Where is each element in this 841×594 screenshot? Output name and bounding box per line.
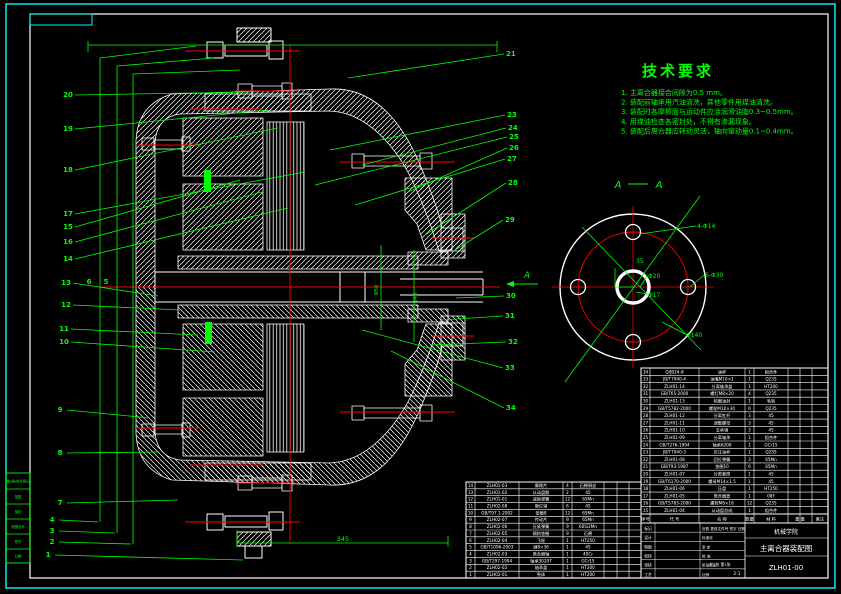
balloon-number: 10: [59, 338, 69, 346]
leader-line: [59, 542, 131, 544]
bom-cell: 压紧弹簧: [533, 523, 550, 530]
bom-cell: 22: [643, 457, 649, 462]
bom-cell: 螺母M14×1.5: [708, 478, 736, 485]
bom-cell: 分离轴承盖: [712, 383, 733, 390]
bom-cell: 6: [469, 538, 472, 543]
bom-cell: 5: [469, 545, 472, 550]
balloon-number: 24: [508, 124, 518, 132]
balloon-number: 26: [509, 144, 519, 152]
bom-cell: 1: [748, 442, 751, 447]
bom-cell: 减振弹簧: [533, 496, 550, 503]
title-block-label: 标准化: [702, 535, 713, 540]
bom-cell: 12: [565, 497, 571, 502]
bom-cell: 60Si2Mn: [579, 524, 597, 529]
bom-cell: 油杯: [718, 368, 727, 375]
bom-cell: ZLH01-06: [664, 486, 685, 491]
bom-cell: 轴承30207: [530, 557, 552, 564]
balloon-number: 33: [505, 364, 515, 372]
bom-header-cell: 材 料: [766, 516, 777, 523]
bom-cell: 18: [643, 486, 649, 491]
bom-cell: ZLH02-07: [487, 517, 508, 522]
bom-cell: 40Cr: [583, 552, 593, 557]
bom-cell: 26: [643, 428, 649, 433]
dimension-label: Φ140: [686, 332, 702, 339]
bom-cell: 4: [748, 391, 751, 396]
balloon-number: 17: [63, 210, 73, 218]
bom-cell: 从动盘总成: [712, 507, 733, 514]
balloon-number: 8: [58, 449, 63, 457]
bom-cell: 15: [643, 508, 649, 513]
bom-cell: 1: [566, 538, 569, 543]
bom-cell: 分离杠杆: [714, 412, 732, 419]
tech-requirement-line: 1. 主离合器接合间隙为0.5 mm。: [621, 88, 727, 97]
bom-cell: 23: [643, 450, 649, 455]
bom-cell: 飞轮: [537, 537, 546, 544]
bom-cell: 螺栓M10×30: [709, 405, 735, 412]
title-block-label: 校核: [644, 554, 652, 559]
bom-cell: GB/T6170-2000: [658, 479, 691, 484]
balloon-number: 28: [508, 179, 518, 187]
cad-viewport: 345 Φ50 Φ40 A A A: [0, 0, 841, 594]
bom-cell: 1: [566, 572, 569, 577]
bom-cell: 轴承盖: [535, 564, 548, 571]
bom-cell: 调整螺母: [714, 419, 731, 426]
bom-cell: ZLH02-08: [487, 504, 508, 509]
balloon-number: 7: [58, 499, 63, 507]
balloon-number: 15: [63, 223, 73, 231]
bom-cell: 45: [585, 490, 591, 495]
bom-cell: GB/T97.1-2002: [481, 510, 513, 515]
bom-cell: 1: [748, 486, 751, 491]
bom-cell: Q/JB24-8: [665, 369, 684, 374]
balloon-number: 20: [63, 91, 73, 99]
balloon-number: 19: [63, 125, 73, 133]
bom-cell: ZLH01-08: [664, 457, 685, 462]
title-block-label: 制图: [644, 544, 652, 549]
dimension-label: Φ20: [648, 273, 661, 280]
bom-cell: 1: [748, 450, 751, 455]
drawing-number: ZLH01-00: [769, 564, 803, 572]
leader-line: [408, 148, 507, 192]
technical-requirements: 技术要求 1. 主离合器接合间隙为0.5 mm。2. 装配前轴承用汽油清洗，其他…: [621, 62, 798, 135]
leader-line: [59, 520, 98, 522]
margin-table-cell: 签字: [15, 539, 22, 544]
bom-cell: 离合器轴: [533, 551, 550, 558]
bom-cell: 29: [643, 406, 649, 411]
bom-cell: 隔热垫圈: [533, 530, 550, 537]
bom-cell: 1: [748, 377, 751, 382]
bom-cell: 毡圈油封: [714, 397, 731, 404]
bom-cell: HT200: [764, 384, 778, 389]
dim-shaft-1: Φ50: [374, 285, 380, 295]
bom-cell: HT200: [581, 572, 595, 577]
bom-cell: 3: [748, 428, 751, 433]
bom-cell: ZLH01-11: [664, 420, 685, 425]
bom-cell: 12: [565, 510, 571, 515]
bom-cell: 1: [566, 552, 569, 557]
balloon-number: 3: [50, 527, 55, 535]
balloon-number: 2: [50, 538, 55, 546]
bom-cell: GB/T297-1994: [482, 558, 513, 563]
bom-cell: Q235: [765, 377, 777, 382]
margin-table-cell: 描图: [15, 494, 22, 499]
bom-cell: Q235: [765, 501, 777, 506]
bom-cell: GCr15: [581, 558, 595, 563]
bom-cell: 19: [643, 479, 649, 484]
bom-cell: 65Mn: [765, 457, 777, 462]
bom-cell: 11: [468, 504, 474, 509]
bom-cell: 20: [643, 471, 649, 476]
bom-cell: 08F: [767, 493, 775, 498]
balloon-number: 34: [506, 404, 516, 412]
balloon-number: 21: [506, 50, 516, 58]
bom-cell: 3: [748, 420, 751, 425]
bom-cell: 7: [469, 531, 472, 536]
bom-header-cell: 序号: [641, 516, 649, 523]
bom-cell: 6: [748, 464, 751, 469]
bom-cell: 组合件: [765, 368, 778, 375]
aa-label-right: A: [655, 180, 663, 191]
dimension-label: 4-Φ14: [697, 223, 716, 230]
bom-cell: 分离套筒: [714, 470, 731, 477]
bom-cell: 螺栓M8×16: [710, 500, 734, 507]
leader-line: [348, 54, 504, 78]
bom-cell: 1: [748, 471, 751, 476]
bom-cell: ZLH01-09: [664, 435, 685, 440]
title-block-label: 标记: [644, 526, 652, 531]
bom-cell: ZLH02-05: [487, 531, 508, 536]
bom-cell: 3: [469, 558, 472, 563]
bom-cell: 压盘: [718, 485, 726, 492]
bom-cell: GB/T1096-2003: [481, 545, 514, 550]
margin-table-cell: 描校: [15, 509, 22, 514]
title-block-label: 审 定: [702, 544, 711, 549]
balloon-number: 31: [505, 312, 515, 320]
bom-cell: 离合器盖: [714, 492, 731, 499]
bom-cell: 石棉: [584, 530, 592, 537]
bom-cell: 10: [468, 510, 474, 515]
aa-label-left: A: [614, 180, 622, 191]
bom-header-cell: 名 称: [717, 516, 727, 523]
bom-cell: 4: [566, 483, 569, 488]
balloon-number: 6: [87, 278, 92, 286]
bom-cell: 13: [468, 490, 474, 495]
bom-header-cell: 代 号: [670, 516, 680, 523]
bom-cell: 传动片: [535, 516, 548, 523]
title-block-label: 比例: [702, 572, 710, 577]
title-block-texts: 机械学院 主离合器装配图 ZLH01-00 2:1 共1张 第1张: [709, 528, 812, 577]
bom-cell: 45: [768, 413, 774, 418]
bom-cell: 2: [469, 565, 472, 570]
bom-cell: 分离轴承: [714, 434, 732, 441]
leader-line: [73, 305, 180, 310]
bom-cell: 从动盘毂: [533, 489, 551, 496]
bom-header-cell: 重 量: [795, 516, 805, 523]
bom-cell: GCr15: [764, 442, 778, 447]
sheet-count: 共1张 第1张: [709, 562, 730, 567]
dimension-label: 6-Φ30: [705, 272, 724, 279]
bom-cell: 螺钉M8×20: [710, 390, 734, 397]
leader-line: [330, 115, 505, 150]
bom-cell: 65Mn: [582, 510, 594, 515]
bom-cell: ZLH01-07: [664, 471, 685, 476]
bom-cell: HT250: [581, 538, 595, 543]
accessory-strip: [30, 14, 92, 25]
highlight-part-2: [205, 322, 212, 344]
balloon-number: 30: [506, 292, 516, 300]
bom-cell: 9: [566, 531, 569, 536]
bom-cell: 12: [468, 497, 474, 502]
title-block-label: 工艺: [644, 572, 652, 577]
bom-cell: 27: [643, 420, 649, 425]
bom-cell: 24: [643, 442, 649, 447]
title-block-label: 审核: [644, 563, 652, 568]
bom-cell: GB/T65-2000: [661, 391, 689, 396]
bom-cell: 组合件: [765, 434, 778, 441]
main-section-view: 345 Φ50 Φ40 A: [88, 28, 538, 558]
engineering-drawing: 345 Φ50 Φ40 A A A: [0, 0, 841, 594]
bom-cell: 1: [748, 508, 751, 513]
bom-cell: 65Mn: [582, 517, 594, 522]
bom-cell: 45: [585, 504, 591, 509]
leader-line: [59, 531, 115, 533]
tech-title: 技术要求: [642, 62, 714, 80]
bom-cell: 17: [643, 493, 649, 498]
dim-bottom-length: 345: [337, 535, 349, 543]
bom-cell: ZLH02-02: [487, 565, 508, 570]
balloon-number: 14: [63, 255, 73, 263]
bom-cell: 3: [748, 413, 751, 418]
bom-cell: JB/T7940-4: [662, 377, 686, 382]
margin-table: 借(通)用件登记描图描校底图总号签字日期: [6, 473, 30, 563]
balloon-number: 11: [59, 325, 69, 333]
dimension-label: Φ17: [648, 292, 661, 299]
balloon-number: 12: [61, 301, 71, 309]
bom-cell: 31: [643, 391, 649, 396]
bom-cell: 34: [643, 369, 649, 374]
balloon-number: 18: [63, 166, 73, 174]
drawing-title: 主离合器装配图: [760, 543, 813, 553]
bom-cell: ZLH02-01: [487, 572, 508, 577]
bom-cell: 65Mn: [765, 464, 777, 469]
balloon-number: 13: [61, 279, 71, 287]
bom-cell: ZLH01-05: [664, 493, 685, 498]
leader-line: [71, 329, 198, 335]
section-upper-half: [136, 83, 465, 287]
balloon-number: 9: [58, 406, 63, 414]
bom-cell: 1: [748, 435, 751, 440]
bom-cell: Q235: [765, 450, 777, 455]
bom-header-cell: 数量: [745, 516, 753, 523]
bom-cell: 6: [748, 406, 751, 411]
title-block-label: 设计: [644, 535, 652, 540]
bom-cell: 45: [768, 420, 774, 425]
bom-cell: 1: [748, 398, 751, 403]
tech-lines: 1. 主离合器接合间隙为0.5 mm。2. 装配前轴承用汽油清洗，其他零件用煤油…: [621, 88, 798, 135]
bom-cell: 45: [585, 545, 591, 550]
cover-band: [205, 94, 311, 111]
balloon-number: 27: [507, 155, 517, 163]
bom-cell: GB/T5782-2000: [658, 406, 691, 411]
bom-cell: 1: [566, 565, 569, 570]
tech-requirement-line: 2. 装配前轴承用汽油清洗，其他零件用煤油清洗。: [621, 98, 777, 107]
bom-cell: 21: [643, 464, 649, 469]
bom-cell: 石棉铜丝: [580, 482, 597, 489]
bom-cell: 回位弹簧: [714, 456, 731, 463]
unit-name: 机械学院: [774, 528, 798, 536]
bom-cell: 限位销: [535, 503, 548, 510]
bom-cell: 9: [469, 517, 472, 522]
balloon-number: 25: [509, 133, 519, 141]
bom-cell: 8: [469, 524, 472, 529]
bom-cell: 2: [566, 490, 569, 495]
bom-cell: 1: [748, 479, 751, 484]
bom-cell: Q235: [765, 406, 777, 411]
bom-cell: 1: [748, 384, 751, 389]
bom-cell: 33: [643, 377, 649, 382]
bom-cell: ZLH02-04: [487, 538, 508, 543]
tech-requirement-line: 5. 装配后离合器应转动灵活，轴向窜动量0.1~0.4mm。: [621, 126, 798, 135]
bom-cell: 28: [643, 413, 649, 418]
title-block-label: 批 准: [702, 554, 711, 559]
leader-line: [55, 555, 243, 560]
bom-cell: Q235: [765, 391, 777, 396]
tech-requirement-line: 3. 装配时各摩擦面与运动件应涂润滑油脂0.3~0.5mm。: [621, 107, 798, 116]
bom-cell: GB/T5783-2000: [658, 501, 691, 506]
bom-cell: 壳体: [537, 571, 546, 578]
pressure-plate-block: [183, 118, 263, 176]
hub-sleeve: [178, 256, 418, 269]
balloon-number: 1: [46, 551, 51, 559]
bom-cell: ZLH01-02: [487, 490, 508, 495]
bom-cell: ZLH01-10: [664, 428, 685, 433]
bom-cell: 组合件: [765, 507, 778, 514]
section-cut-arrow: A: [506, 271, 538, 287]
bom-cell: GB/T276-1994: [659, 442, 690, 447]
bom-header-cell: 备注: [816, 516, 825, 523]
bom-cell: ZLH01-14: [664, 384, 685, 389]
bom-cell: 1: [469, 572, 472, 577]
bom-cell: 9: [566, 517, 569, 522]
balloon-number: 5: [104, 278, 109, 286]
bom-cell: 4: [469, 552, 472, 557]
bom-cell: 45: [768, 428, 774, 433]
balloon-number: 16: [63, 238, 73, 246]
bom-cell: 25: [643, 435, 649, 440]
bom-cell: 垫圈8: [535, 509, 546, 516]
bom-cell: GB/T93-1987: [661, 464, 689, 469]
margin-table-cell: 底图总号: [11, 524, 25, 529]
margin-table-cell: 日期: [15, 554, 22, 559]
bom-cell: 1: [566, 545, 569, 550]
bom-cell: 32: [643, 384, 649, 389]
balloon-number: 4: [50, 516, 55, 524]
bom-cell: HT200: [581, 565, 595, 570]
bom-cell: ZLH01-01: [487, 497, 508, 502]
bom-cell: 14: [468, 483, 474, 488]
bom-cell: 30: [643, 398, 649, 403]
bom-cell: ZLH01-03: [487, 483, 508, 488]
bom-cell: 摩擦片: [535, 482, 548, 489]
balloon-number: 29: [505, 216, 515, 224]
disc-pack: [267, 122, 304, 250]
margin-table-cell: 借(通)用件登记: [7, 479, 31, 484]
top-bolt-assembly: [207, 28, 283, 59]
bom-cell: 1: [748, 493, 751, 498]
bom-cell: 45: [768, 479, 774, 484]
section-cut-label: A: [523, 271, 530, 281]
bom-cell: 油嘴M10×1: [710, 376, 734, 383]
bom-cell: 45: [768, 471, 774, 476]
bom-cell: 轴承6208: [712, 441, 731, 448]
bom-cell: 1: [748, 369, 751, 374]
bom-cell: ZLH02-06: [487, 524, 508, 529]
bom-cell: 6: [566, 504, 569, 509]
tech-requirement-line: 4. 用煤油检查各密封处，不得有渗漏现象。: [621, 117, 756, 126]
leader-line: [456, 296, 504, 298]
bom-cell: HT250: [764, 486, 778, 491]
bom-cell: ZLH02-03: [487, 552, 508, 557]
bom-cell: 1: [566, 558, 569, 563]
bom-cell: 9: [566, 524, 569, 529]
balloon-number: 32: [508, 338, 518, 346]
title-block-label: 处数 更改文件号 签字 日期: [702, 526, 745, 531]
margin-table-frame: [6, 473, 30, 563]
leader-line: [67, 500, 178, 503]
bottom-bolt-assembly: [207, 512, 283, 558]
bom-cell: ZLH01-13: [664, 398, 685, 403]
bom-cell: 支承销: [716, 427, 729, 434]
dimension-label: 35: [636, 258, 644, 265]
bom-cell: 垫圈10: [715, 463, 729, 470]
bom-cell: 压注油杯: [714, 449, 732, 456]
bom-cell: ZLH01-04: [664, 508, 685, 513]
inner-bolt-2: [352, 153, 432, 169]
bom-cell: JB/T7940-3: [662, 450, 686, 455]
bom-cell: 16: [643, 501, 649, 506]
bom-cell: 65Mn: [582, 497, 594, 502]
dim-shaft-2: Φ40: [413, 293, 419, 303]
section-a-a-view: A A 4-Φ1435Φ20Φ176-Φ30Φ140: [552, 180, 724, 382]
bom-cell: 毛毡: [767, 397, 776, 403]
bom-cell: 12: [747, 501, 753, 506]
bom-cell: ZLH01-12: [664, 413, 685, 418]
bom-cell: 3: [748, 457, 751, 462]
bom-cell: 键8×36: [533, 544, 549, 551]
scale-value: 2:1: [733, 571, 740, 577]
balloon-number: 23: [507, 111, 517, 119]
